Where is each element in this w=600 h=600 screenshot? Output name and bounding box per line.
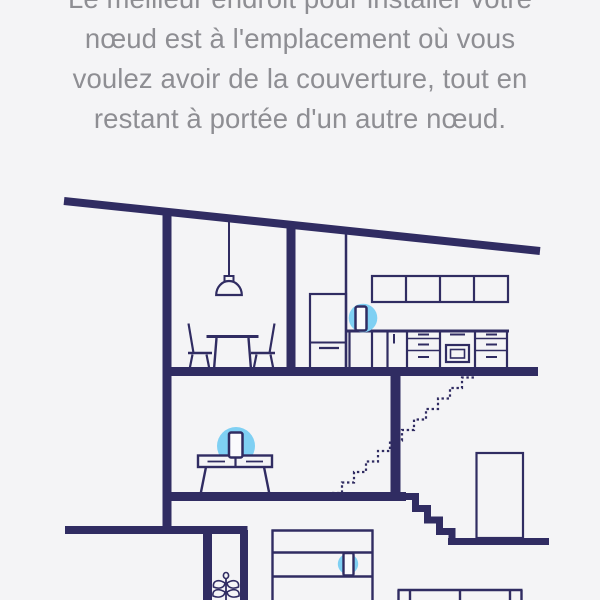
- oven-icon: [446, 335, 469, 363]
- dining-chair-right-icon: [251, 324, 275, 370]
- dining-table-icon: [207, 337, 259, 370]
- plant-icon: [213, 573, 239, 600]
- console-table-icon: [198, 456, 272, 495]
- house-illustration: [0, 0, 600, 600]
- roof-line: [64, 201, 540, 251]
- stairs-solid-icon: [400, 497, 452, 542]
- wifi-node-living: [229, 433, 243, 458]
- sideboard-icon: [398, 590, 523, 600]
- wifi-node-icon: [356, 307, 367, 331]
- wifi-node-basement: [338, 553, 358, 576]
- door-icon: [477, 453, 524, 538]
- wifi-node-icon: [344, 553, 354, 576]
- house-structure: [64, 201, 549, 600]
- fridge-icon: [310, 294, 346, 369]
- pendant-lamp-icon: [216, 222, 242, 295]
- wifi-node-icon: [229, 433, 243, 458]
- wifi-node-kitchen: [349, 304, 378, 333]
- setup-screen: Le meilleur endroit pour installer votre…: [0, 0, 600, 600]
- dining-chair-left-icon: [188, 324, 212, 370]
- kitchen-base-cabinets-icon: [350, 332, 508, 368]
- stairs-dashed-icon: [332, 378, 476, 494]
- shelf-unit-icon: [272, 530, 374, 600]
- upper-cabinets-icon: [372, 276, 508, 302]
